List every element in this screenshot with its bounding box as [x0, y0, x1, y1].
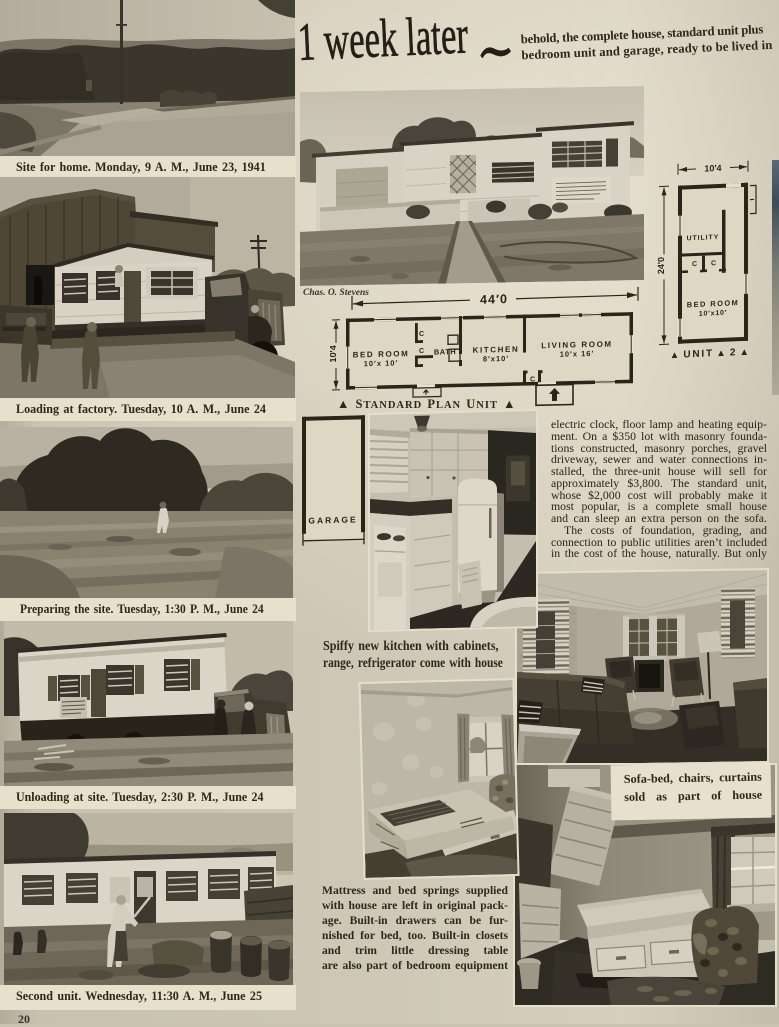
svg-text:BATH: BATH [434, 347, 456, 357]
svg-text:10′x 16′: 10′x 16′ [560, 349, 595, 359]
svg-text:24′0: 24′0 [656, 257, 666, 275]
svg-text:C: C [692, 261, 697, 268]
svg-text:GARAGE: GARAGE [308, 514, 357, 525]
svg-text:10′4: 10′4 [330, 345, 338, 362]
svg-text:10′x10′: 10′x10′ [699, 310, 727, 318]
svg-text:10′4: 10′4 [704, 163, 721, 174]
svg-text:10′x 10′: 10′x 10′ [364, 358, 399, 368]
svg-text:C: C [419, 331, 424, 338]
svg-text:C: C [419, 348, 424, 355]
svg-text:8′x10′: 8′x10′ [483, 354, 509, 364]
svg-text:C: C [530, 376, 535, 383]
svg-text:▴ UNIT ▴ 2 ▴: ▴ UNIT ▴ 2 ▴ [671, 347, 749, 361]
svg-text:C: C [711, 260, 716, 267]
svg-text:44′0: 44′0 [480, 292, 508, 307]
